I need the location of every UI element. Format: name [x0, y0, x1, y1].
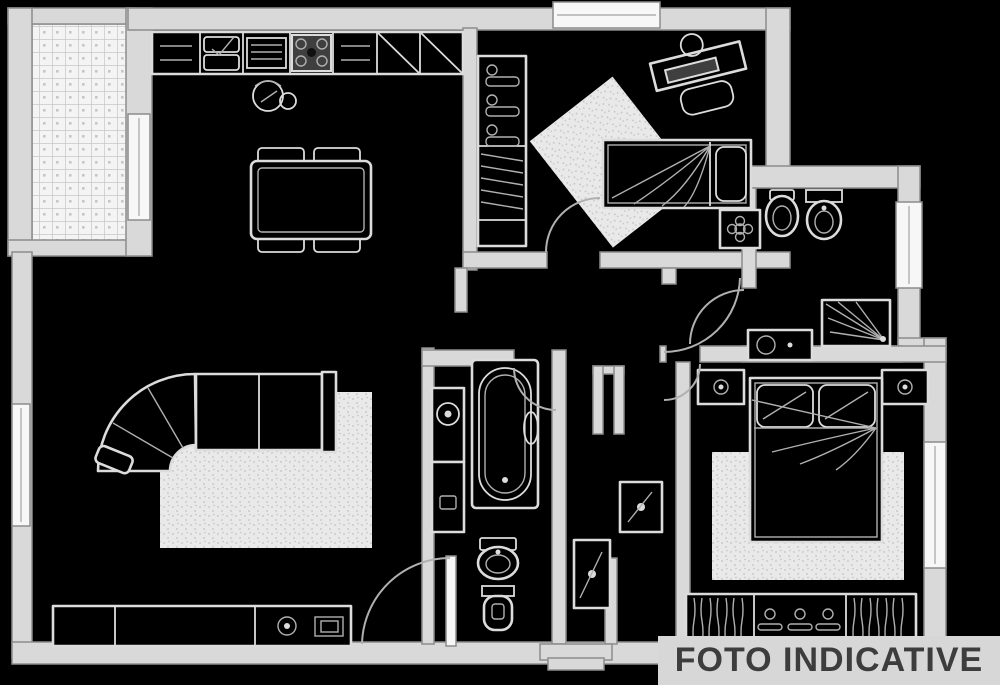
terrace-window [128, 114, 150, 220]
kitchen [152, 32, 463, 252]
floor-plan: FOTO INDICATIVE [0, 0, 1000, 685]
corridor-door-arc [664, 278, 740, 352]
living-room-window [12, 404, 30, 526]
bidet [766, 190, 798, 236]
dining-table [251, 148, 371, 252]
kettle [253, 81, 296, 111]
vanity-sink [748, 330, 812, 360]
bathtub [472, 360, 538, 508]
desk [645, 23, 753, 122]
nightstand [698, 370, 744, 404]
hall-cabinet [574, 540, 610, 608]
washing-machine [432, 388, 464, 462]
cooktop [292, 35, 331, 71]
single-bed [603, 140, 751, 208]
entry-door [362, 556, 456, 646]
outdoor-steps [540, 644, 612, 670]
floor-plan-canvas [0, 0, 1000, 685]
cabinet [432, 462, 464, 532]
tiled-floor [32, 24, 130, 242]
terrace [32, 24, 130, 242]
double-bed [750, 378, 882, 542]
toilet [806, 190, 842, 239]
plant-table [720, 210, 760, 248]
coat-closet [478, 56, 526, 246]
bathroom-1 [748, 190, 890, 360]
sideboard [53, 606, 351, 646]
hall-cabinet [620, 482, 662, 532]
watermark: FOTO INDICATIVE [658, 636, 1000, 685]
toilet [482, 586, 514, 630]
nightstand [882, 370, 928, 404]
bedroom-2-window [924, 442, 946, 568]
kitchen-top-window [553, 2, 660, 28]
bathroom-1-window [896, 202, 922, 288]
desk-chair [679, 79, 736, 117]
shower [822, 300, 890, 346]
hallway [574, 482, 662, 608]
watermark-text: FOTO INDICATIVE [675, 641, 983, 680]
washbasin [478, 538, 518, 579]
